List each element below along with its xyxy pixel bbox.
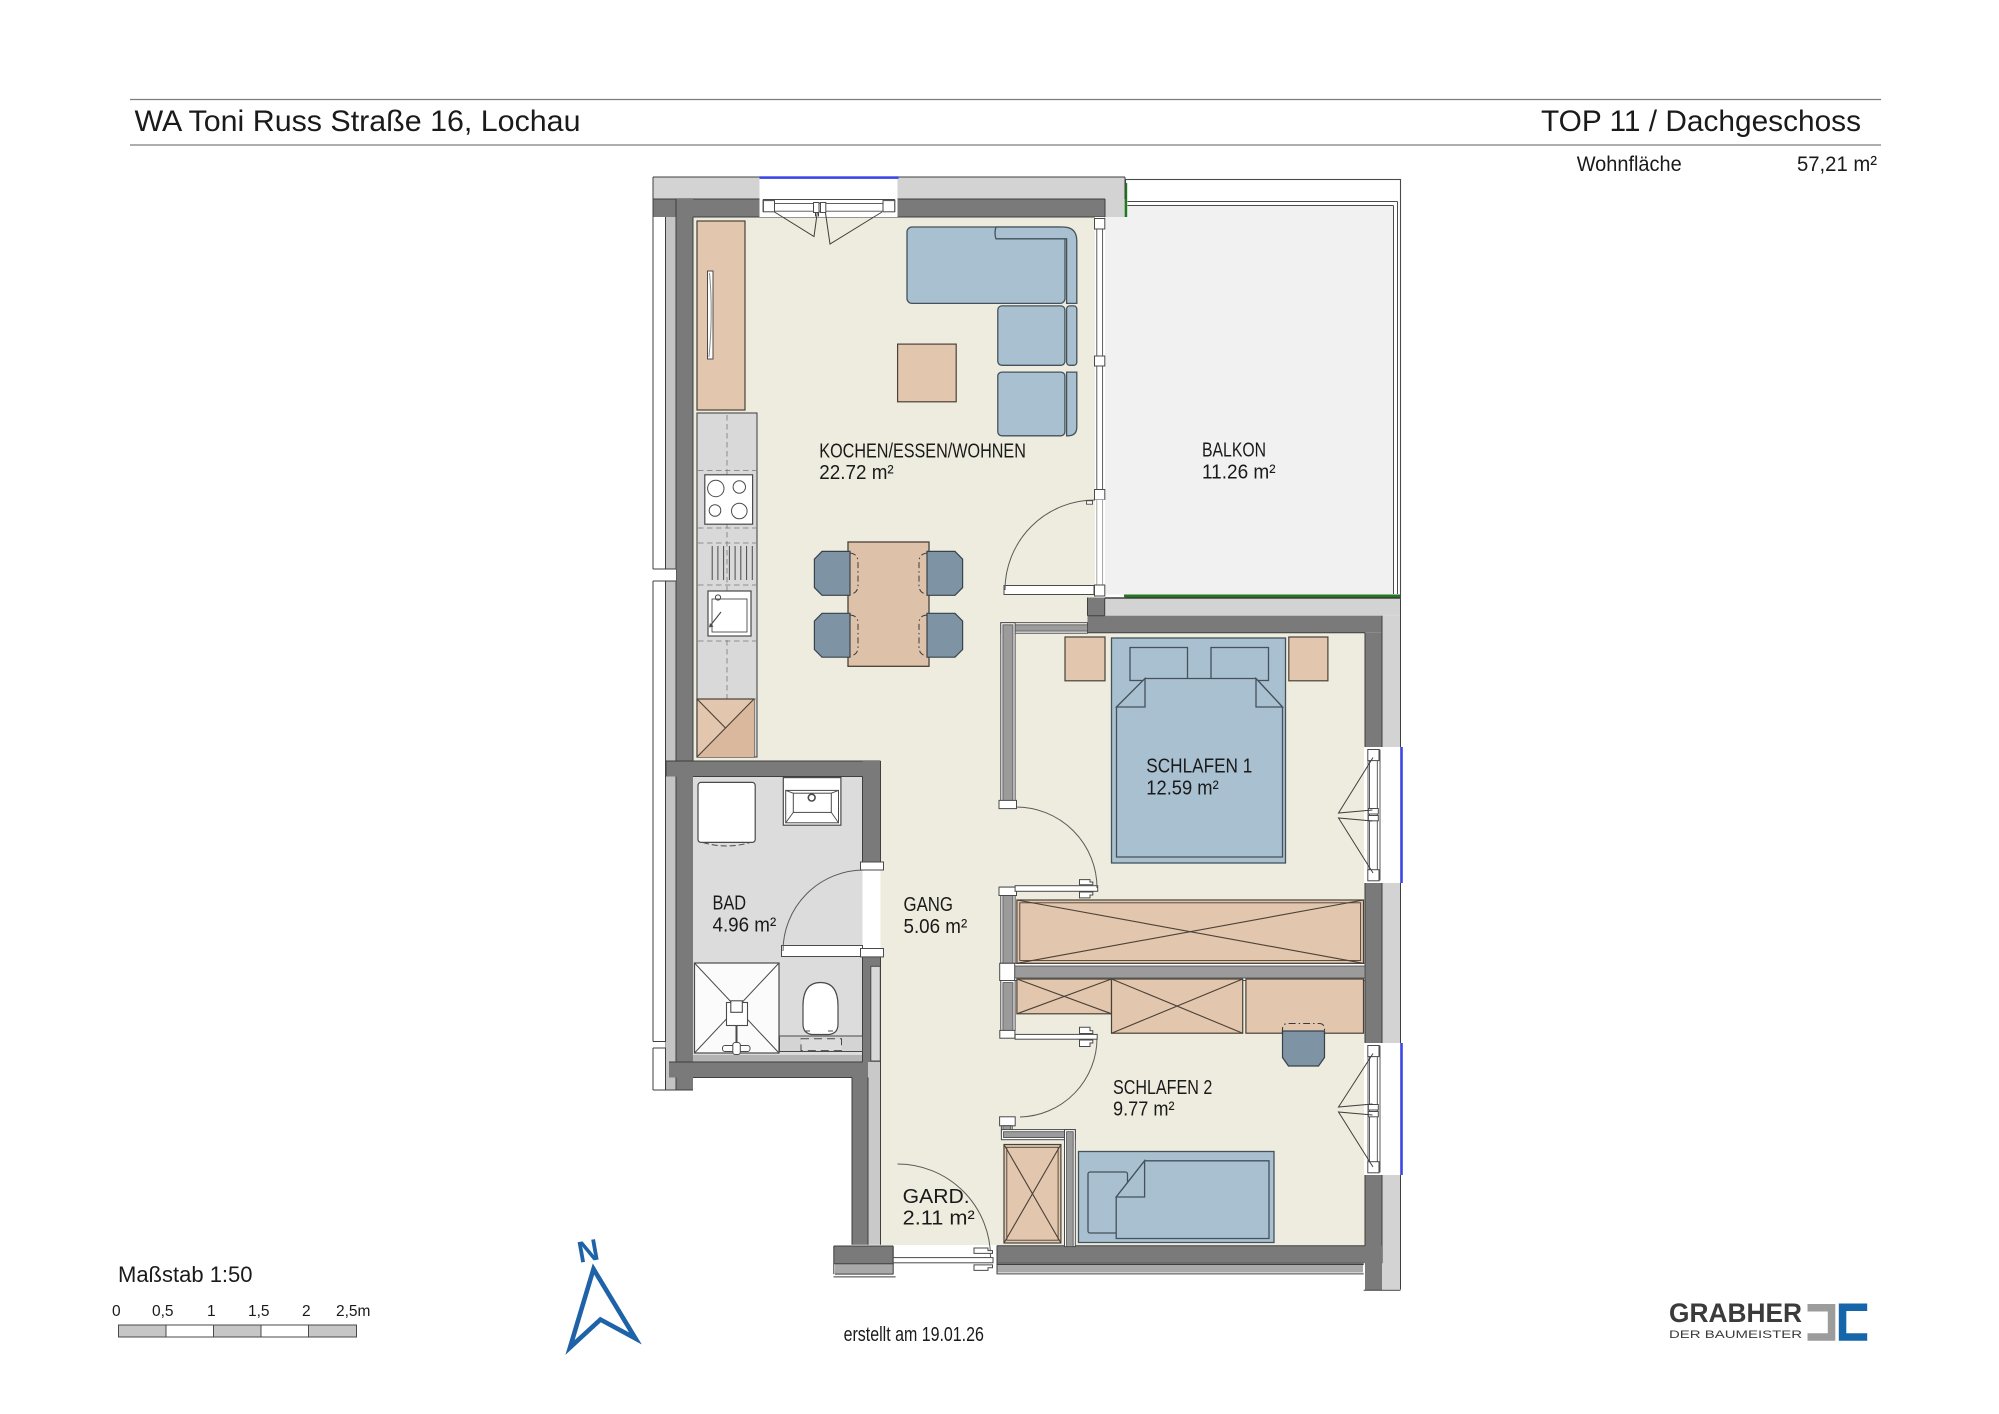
svg-text:WA Toni Russ Straße 16, Lochau: WA Toni Russ Straße 16, Lochau [135, 105, 581, 138]
svg-text:GRABHER: GRABHER [1669, 1298, 1802, 1328]
svg-text:GANG: GANG [904, 893, 954, 916]
svg-text:SCHLAFEN 1: SCHLAFEN 1 [1146, 755, 1252, 778]
svg-text:2.11 m²: 2.11 m² [903, 1207, 975, 1230]
svg-text:2: 2 [302, 1303, 311, 1320]
svg-text:5.06 m²: 5.06 m² [904, 915, 968, 938]
svg-text:erstellt am 19.01.26: erstellt am 19.01.26 [844, 1323, 984, 1346]
svg-text:Maßstab 1:50: Maßstab 1:50 [118, 1262, 253, 1287]
svg-text:0,5: 0,5 [152, 1303, 174, 1320]
svg-text:22.72 m²: 22.72 m² [819, 461, 894, 484]
svg-text:11.26 m²: 11.26 m² [1202, 460, 1276, 483]
svg-text:BAD: BAD [713, 892, 747, 915]
svg-text:GARD.: GARD. [903, 1185, 970, 1208]
svg-text:BALKON: BALKON [1202, 439, 1266, 462]
svg-text:KOCHEN/ESSEN/WOHNEN: KOCHEN/ESSEN/WOHNEN [819, 440, 1026, 463]
svg-text:1,5: 1,5 [248, 1303, 270, 1320]
svg-text:57,21 m²: 57,21 m² [1797, 152, 1877, 176]
svg-text:TOP 11 / Dachgeschoss: TOP 11 / Dachgeschoss [1541, 105, 1861, 138]
svg-text:Wohnfläche: Wohnfläche [1577, 152, 1682, 176]
svg-text:2,5m: 2,5m [336, 1303, 370, 1320]
svg-text:12.59 m²: 12.59 m² [1146, 776, 1219, 799]
svg-text:DER BAUMEISTER: DER BAUMEISTER [1669, 1329, 1802, 1341]
svg-text:9.77 m²: 9.77 m² [1113, 1098, 1175, 1121]
svg-text:0: 0 [112, 1303, 121, 1320]
svg-text:4.96 m²: 4.96 m² [713, 913, 777, 936]
svg-text:SCHLAFEN 2: SCHLAFEN 2 [1113, 1076, 1212, 1099]
svg-text:1: 1 [207, 1303, 216, 1320]
